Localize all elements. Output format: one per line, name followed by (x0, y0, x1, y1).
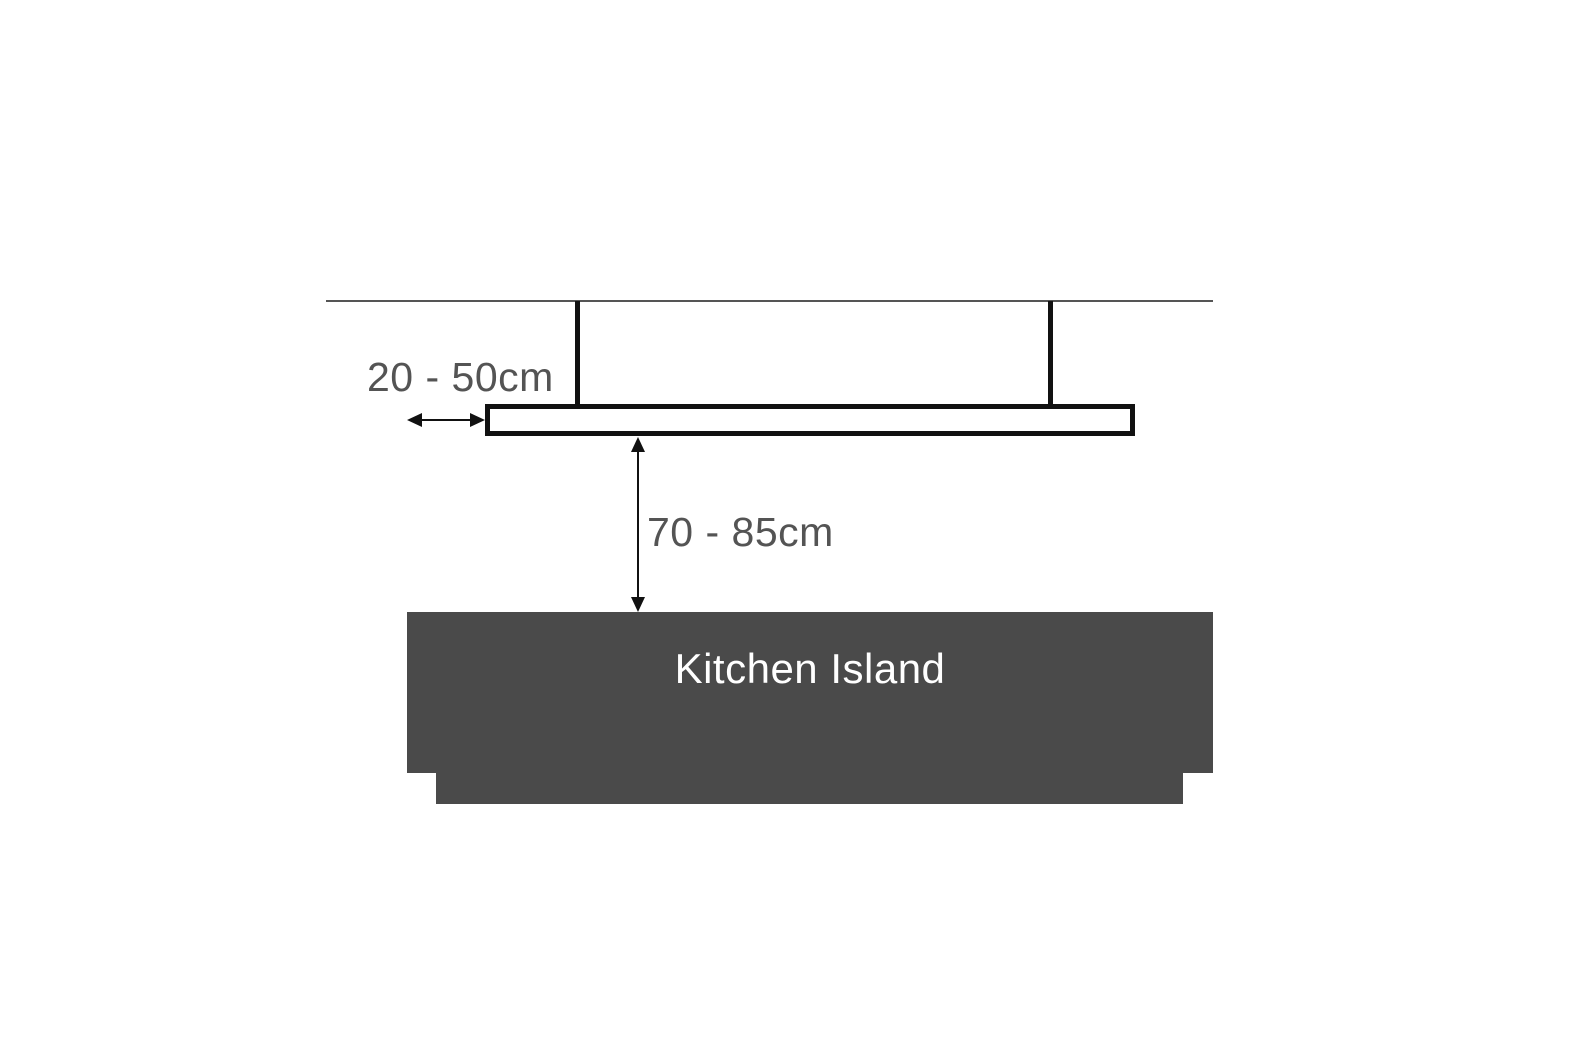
pendant-light-fixture (485, 404, 1135, 436)
drop-height-label: 70 - 85cm (647, 512, 834, 553)
kitchen-island: Kitchen Island (407, 612, 1213, 773)
ceiling-gap-label: 20 - 50cm (367, 357, 554, 398)
ceiling-line (326, 300, 1213, 302)
suspension-rod-right (1048, 301, 1053, 407)
diagram-canvas: 20 - 50cm 70 - 85cm Kitchen Island (0, 0, 1570, 1046)
horizontal-double-arrow-icon (407, 411, 485, 429)
kitchen-island-label: Kitchen Island (675, 648, 946, 690)
suspension-rod-left (575, 301, 580, 407)
kitchen-island-base (436, 773, 1183, 804)
vertical-double-arrow-icon (629, 437, 647, 612)
